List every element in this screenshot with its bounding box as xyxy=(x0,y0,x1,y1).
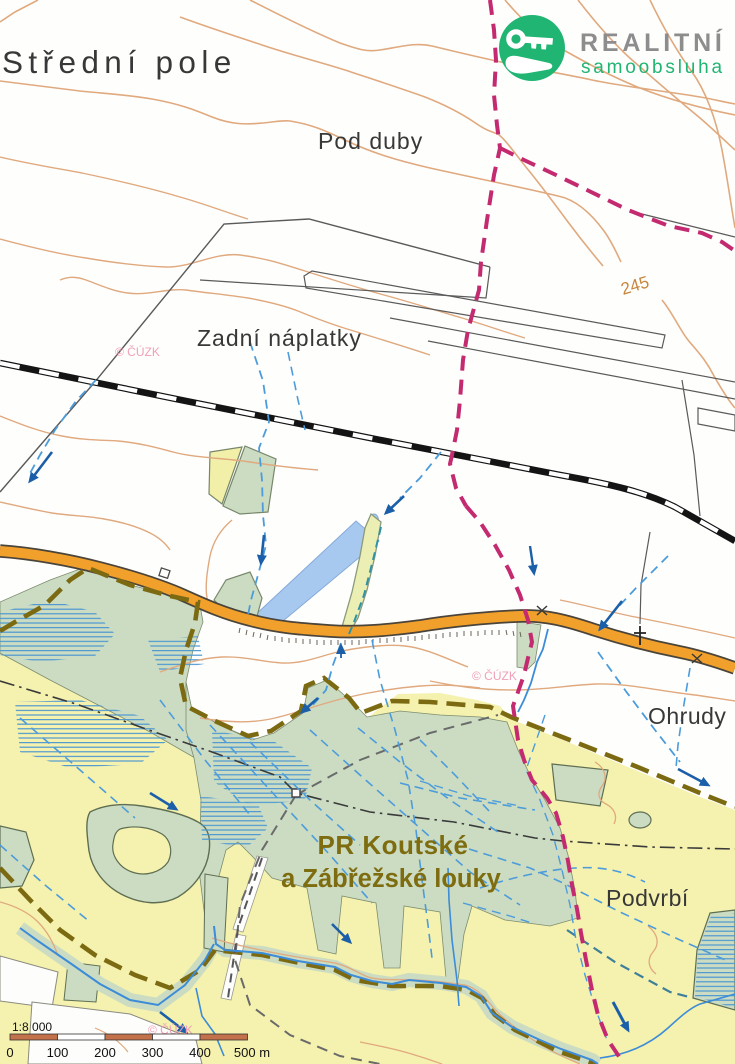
svg-text:© ČÚZK: © ČÚZK xyxy=(472,668,517,683)
svg-text:a Zábřežské louky: a Zábřežské louky xyxy=(281,865,502,893)
svg-text:1:8 000: 1:8 000 xyxy=(12,1020,52,1034)
svg-text:Ohrudy: Ohrudy xyxy=(648,703,726,729)
svg-text:Podvrbí: Podvrbí xyxy=(606,885,689,911)
svg-text:Střední pole: Střední pole xyxy=(2,44,237,80)
svg-text:© ČÚZK: © ČÚZK xyxy=(115,344,160,359)
svg-text:PR Koutské: PR Koutské xyxy=(318,830,469,860)
svg-text:REALITNÍ: REALITNÍ xyxy=(580,28,726,57)
svg-text:400: 400 xyxy=(189,1045,211,1060)
svg-text:200: 200 xyxy=(94,1045,116,1060)
svg-text:samoobsluha: samoobsluha xyxy=(581,57,725,78)
svg-text:Pod duby: Pod duby xyxy=(318,128,423,154)
svg-text:100: 100 xyxy=(47,1045,69,1060)
svg-text:Zadní náplatky: Zadní náplatky xyxy=(197,325,362,351)
svg-text:300: 300 xyxy=(142,1045,164,1060)
svg-text:0: 0 xyxy=(6,1045,13,1060)
svg-text:500 m: 500 m xyxy=(234,1045,270,1060)
